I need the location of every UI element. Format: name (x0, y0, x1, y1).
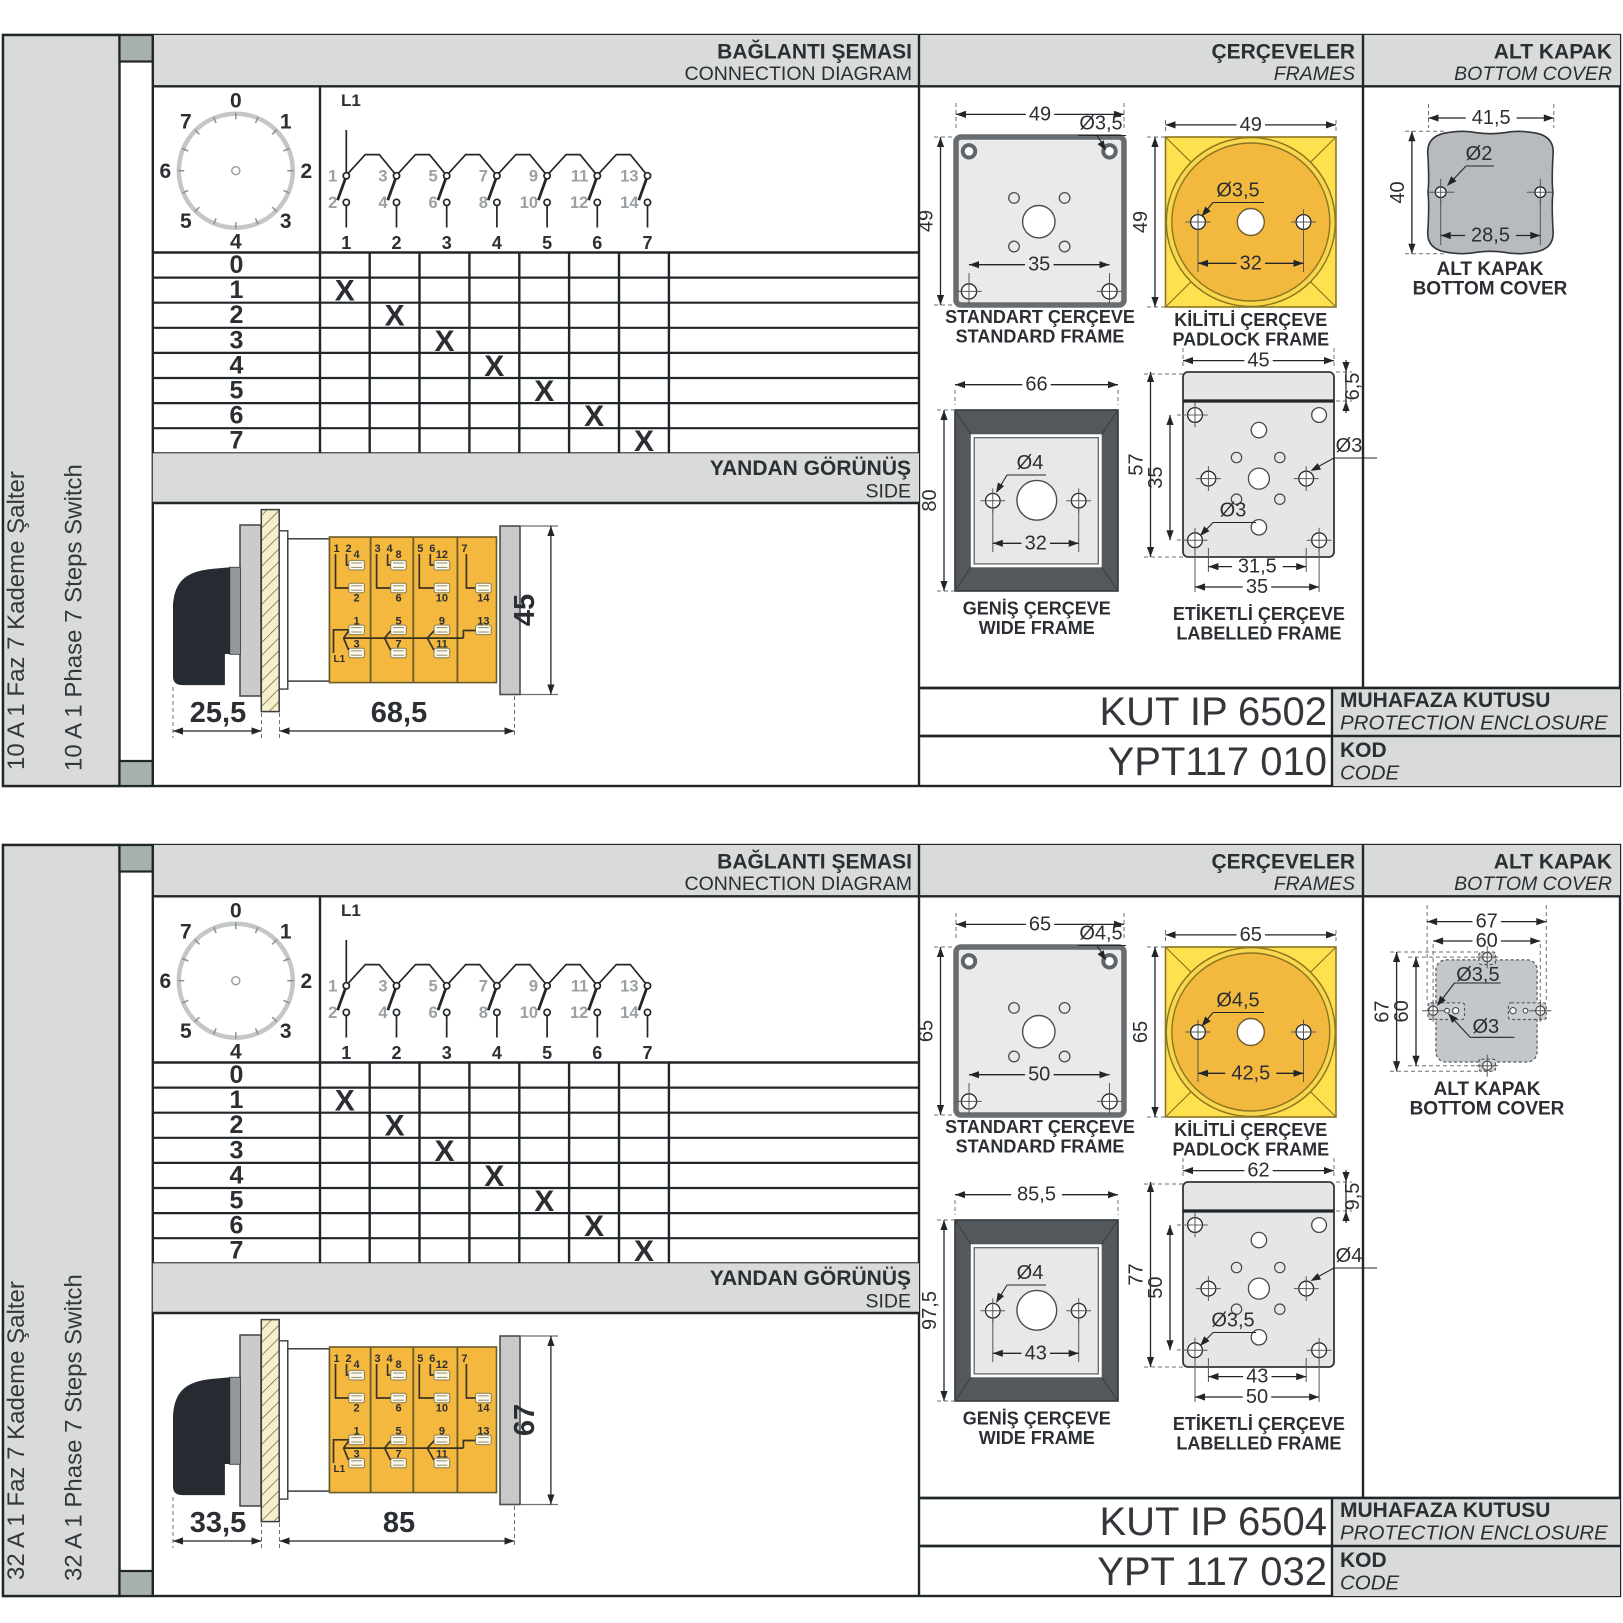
svg-text:ALT KAPAK: ALT KAPAK (1437, 259, 1544, 280)
svg-text:41,5: 41,5 (1472, 107, 1511, 129)
svg-text:CODE: CODE (1340, 762, 1400, 785)
svg-text:1: 1 (280, 110, 292, 133)
svg-text:6: 6 (159, 160, 171, 183)
svg-text:4: 4 (387, 543, 394, 555)
svg-text:6: 6 (429, 1004, 438, 1022)
svg-text:0: 0 (230, 1061, 244, 1089)
svg-text:BOTTOM COVER: BOTTOM COVER (1454, 873, 1612, 895)
svg-text:4: 4 (354, 1359, 361, 1371)
svg-text:Ø3: Ø3 (1220, 500, 1247, 522)
svg-text:GENİŞ ÇERÇEVE: GENİŞ ÇERÇEVE (963, 599, 1111, 619)
svg-text:6: 6 (429, 543, 435, 555)
svg-text:1: 1 (341, 1043, 351, 1063)
svg-text:10 A 1 Faz 7 Kademe Şalter: 10 A 1 Faz 7 Kademe Şalter (3, 471, 30, 770)
svg-text:31,5: 31,5 (1238, 556, 1277, 578)
svg-text:2: 2 (345, 543, 351, 555)
svg-text:6: 6 (230, 1212, 244, 1240)
svg-text:2: 2 (300, 160, 312, 183)
svg-text:5: 5 (180, 210, 192, 233)
svg-text:3: 3 (375, 543, 381, 555)
svg-text:10: 10 (436, 593, 448, 605)
svg-text:7: 7 (642, 233, 652, 253)
svg-text:2: 2 (391, 1043, 401, 1063)
svg-text:6: 6 (159, 970, 171, 993)
svg-text:YANDAN GÖRÜNÜŞ: YANDAN GÖRÜNÜŞ (710, 1267, 911, 1290)
svg-text:3: 3 (280, 1020, 292, 1043)
svg-text:1: 1 (354, 1426, 360, 1438)
svg-text:80: 80 (919, 489, 941, 511)
svg-text:PADLOCK FRAME: PADLOCK FRAME (1172, 330, 1329, 350)
svg-text:6,5: 6,5 (1342, 373, 1364, 401)
svg-text:13: 13 (477, 1426, 489, 1438)
svg-text:X: X (584, 1210, 604, 1243)
svg-text:L1: L1 (341, 91, 361, 110)
svg-text:5: 5 (230, 1187, 244, 1215)
svg-text:35: 35 (1028, 254, 1050, 276)
svg-text:10: 10 (520, 1004, 538, 1022)
svg-text:3: 3 (230, 326, 244, 354)
svg-text:WIDE FRAME: WIDE FRAME (979, 618, 1095, 638)
svg-text:43: 43 (1246, 1366, 1268, 1388)
svg-text:9: 9 (529, 978, 538, 996)
svg-text:BOTTOM COVER: BOTTOM COVER (1413, 279, 1568, 300)
svg-text:CONNECTION DIAGRAM: CONNECTION DIAGRAM (684, 63, 912, 85)
svg-text:0: 0 (230, 251, 244, 279)
svg-text:STANDARD FRAME: STANDARD FRAME (956, 1137, 1125, 1157)
svg-text:SIDE: SIDE (865, 480, 911, 502)
svg-text:5: 5 (542, 1043, 552, 1063)
svg-text:13: 13 (477, 616, 489, 628)
svg-text:Ø2: Ø2 (1466, 143, 1493, 165)
svg-text:6: 6 (592, 233, 602, 253)
svg-text:3: 3 (354, 1449, 360, 1461)
svg-text:85,5: 85,5 (1017, 1184, 1056, 1206)
svg-text:BAĞLANTI ŞEMASI: BAĞLANTI ŞEMASI (717, 40, 912, 64)
svg-text:11: 11 (571, 168, 588, 186)
svg-text:Ø4,5: Ø4,5 (1079, 923, 1122, 945)
svg-text:9,5: 9,5 (1342, 1183, 1364, 1211)
svg-text:33,5: 33,5 (190, 1507, 246, 1539)
svg-text:0: 0 (230, 90, 242, 113)
svg-text:5: 5 (429, 978, 438, 996)
svg-text:65: 65 (916, 1020, 938, 1042)
svg-text:Ø3: Ø3 (1336, 435, 1363, 457)
svg-text:6: 6 (230, 402, 244, 430)
svg-text:2: 2 (230, 1111, 244, 1139)
svg-text:YPT 117 032: YPT 117 032 (1097, 1550, 1327, 1594)
svg-text:Ø3,5: Ø3,5 (1079, 113, 1122, 135)
svg-text:GENİŞ ÇERÇEVE: GENİŞ ÇERÇEVE (963, 1409, 1111, 1429)
svg-text:65: 65 (1029, 913, 1051, 935)
svg-text:X: X (484, 350, 504, 383)
svg-text:7: 7 (479, 978, 488, 996)
svg-text:14: 14 (620, 194, 639, 212)
svg-text:4: 4 (354, 549, 361, 561)
svg-text:ALT KAPAK: ALT KAPAK (1494, 851, 1612, 874)
svg-text:Ø3,5: Ø3,5 (1211, 1310, 1254, 1332)
svg-text:X: X (634, 1235, 654, 1268)
svg-text:YANDAN GÖRÜNÜŞ: YANDAN GÖRÜNÜŞ (710, 457, 911, 480)
svg-text:5: 5 (417, 1353, 423, 1365)
svg-text:X: X (335, 275, 355, 308)
svg-text:40: 40 (1387, 181, 1409, 203)
svg-text:1: 1 (230, 1086, 244, 1114)
svg-text:L1: L1 (334, 654, 346, 665)
svg-text:9: 9 (529, 168, 538, 186)
svg-text:5: 5 (230, 377, 244, 405)
svg-text:68,5: 68,5 (371, 697, 427, 729)
svg-text:12: 12 (436, 549, 448, 561)
svg-text:12: 12 (570, 194, 588, 212)
svg-text:7: 7 (230, 1237, 244, 1265)
svg-text:13: 13 (620, 978, 638, 996)
svg-text:BAĞLANTI ŞEMASI: BAĞLANTI ŞEMASI (717, 850, 912, 874)
svg-text:1: 1 (328, 978, 337, 996)
svg-text:14: 14 (620, 1004, 639, 1022)
svg-text:X: X (584, 400, 604, 433)
svg-text:ALT KAPAK: ALT KAPAK (1434, 1079, 1541, 1100)
svg-text:L1: L1 (334, 1464, 346, 1475)
svg-text:4: 4 (230, 1161, 244, 1189)
svg-text:62: 62 (1247, 1160, 1269, 1182)
svg-text:4: 4 (387, 1353, 394, 1365)
svg-text:KUT IP 6502: KUT IP 6502 (1099, 690, 1327, 734)
svg-text:7: 7 (479, 168, 488, 186)
svg-text:LABELLED FRAME: LABELLED FRAME (1176, 624, 1341, 644)
svg-text:7: 7 (395, 639, 401, 651)
svg-text:2: 2 (300, 970, 312, 993)
svg-text:5: 5 (429, 168, 438, 186)
svg-text:KİLİTLİ ÇERÇEVE: KİLİTLİ ÇERÇEVE (1174, 310, 1327, 330)
svg-text:8: 8 (395, 549, 401, 561)
svg-text:32 A 1 Faz 7 Kademe Şalter: 32 A 1 Faz 7 Kademe Şalter (3, 1281, 30, 1580)
svg-text:ETİKETLİ ÇERÇEVE: ETİKETLİ ÇERÇEVE (1173, 604, 1345, 624)
svg-text:13: 13 (620, 168, 638, 186)
svg-text:Ø3,5: Ø3,5 (1216, 180, 1259, 202)
svg-text:ETİKETLİ ÇERÇEVE: ETİKETLİ ÇERÇEVE (1173, 1414, 1345, 1434)
svg-text:STANDART ÇERÇEVE: STANDART ÇERÇEVE (945, 1117, 1135, 1137)
svg-text:KOD: KOD (1340, 1549, 1387, 1572)
svg-text:1: 1 (333, 543, 339, 555)
svg-text:ÇERÇEVELER: ÇERÇEVELER (1211, 41, 1355, 64)
svg-text:9: 9 (439, 616, 445, 628)
svg-text:LABELLED FRAME: LABELLED FRAME (1176, 1434, 1341, 1454)
svg-text:49: 49 (1240, 114, 1262, 136)
svg-text:85: 85 (383, 1507, 415, 1539)
svg-text:67: 67 (509, 1404, 541, 1436)
svg-text:MUHAFAZA KUTUSU: MUHAFAZA KUTUSU (1340, 689, 1550, 712)
svg-text:3: 3 (230, 1136, 244, 1164)
svg-text:CODE: CODE (1340, 1572, 1400, 1595)
svg-text:4: 4 (492, 233, 502, 253)
svg-text:45: 45 (1247, 350, 1269, 372)
svg-text:Ø4: Ø4 (1017, 452, 1044, 474)
svg-text:2: 2 (345, 1353, 351, 1365)
svg-text:3: 3 (354, 639, 360, 651)
svg-text:6: 6 (592, 1043, 602, 1063)
svg-text:5: 5 (395, 1426, 401, 1438)
svg-text:0: 0 (230, 900, 242, 923)
svg-text:42,5: 42,5 (1231, 1062, 1270, 1084)
svg-text:49: 49 (916, 210, 938, 232)
svg-text:1: 1 (328, 168, 337, 186)
svg-text:X: X (634, 425, 654, 458)
svg-text:2: 2 (328, 194, 337, 212)
svg-text:8: 8 (479, 194, 488, 212)
svg-text:5: 5 (395, 616, 401, 628)
svg-text:9: 9 (439, 1426, 445, 1438)
svg-text:50: 50 (1028, 1064, 1050, 1086)
svg-text:14: 14 (477, 1403, 490, 1415)
svg-text:3: 3 (375, 1353, 381, 1365)
svg-text:X: X (385, 1110, 405, 1143)
svg-text:PROTECTION ENCLOSURE: PROTECTION ENCLOSURE (1340, 1522, 1608, 1545)
svg-text:X: X (434, 325, 454, 358)
svg-text:WIDE FRAME: WIDE FRAME (979, 1428, 1095, 1448)
svg-text:6: 6 (429, 194, 438, 212)
svg-text:Ø4: Ø4 (1336, 1245, 1363, 1267)
svg-text:2: 2 (354, 593, 360, 605)
svg-text:49: 49 (1130, 211, 1152, 233)
svg-text:SIDE: SIDE (865, 1290, 911, 1312)
svg-text:50: 50 (1246, 1386, 1268, 1408)
svg-text:Ø3: Ø3 (1472, 1016, 1499, 1038)
svg-text:35: 35 (1246, 576, 1268, 598)
svg-text:12: 12 (570, 1004, 588, 1022)
svg-text:BOTTOM COVER: BOTTOM COVER (1410, 1098, 1565, 1119)
svg-text:KUT IP 6504: KUT IP 6504 (1099, 1500, 1327, 1544)
svg-text:Ø4,5: Ø4,5 (1216, 990, 1259, 1012)
svg-text:X: X (335, 1085, 355, 1118)
svg-text:60: 60 (1391, 1000, 1413, 1022)
svg-text:4: 4 (378, 194, 388, 212)
svg-text:97,5: 97,5 (919, 1291, 941, 1330)
svg-text:49: 49 (1029, 103, 1051, 125)
svg-text:2: 2 (354, 1403, 360, 1415)
svg-text:35: 35 (1145, 466, 1167, 488)
svg-text:FRAMES: FRAMES (1274, 873, 1355, 895)
svg-text:FRAMES: FRAMES (1274, 63, 1355, 85)
svg-text:2: 2 (230, 301, 244, 329)
svg-text:50: 50 (1145, 1276, 1167, 1298)
svg-text:6: 6 (395, 593, 401, 605)
svg-text:MUHAFAZA KUTUSU: MUHAFAZA KUTUSU (1340, 1499, 1550, 1522)
svg-text:65: 65 (1130, 1021, 1152, 1043)
svg-text:28,5: 28,5 (1471, 225, 1510, 247)
svg-text:25,5: 25,5 (190, 697, 246, 729)
svg-text:X: X (534, 375, 554, 408)
svg-text:3: 3 (442, 233, 452, 253)
svg-text:4: 4 (492, 1043, 502, 1063)
svg-text:X: X (434, 1135, 454, 1168)
svg-text:2: 2 (328, 1004, 337, 1022)
svg-text:32: 32 (1240, 252, 1262, 274)
svg-text:66: 66 (1025, 374, 1047, 396)
svg-text:11: 11 (436, 639, 448, 651)
svg-text:7: 7 (642, 1043, 652, 1063)
svg-text:43: 43 (1025, 1342, 1047, 1364)
svg-text:CONNECTION DIAGRAM: CONNECTION DIAGRAM (684, 873, 912, 895)
svg-text:12: 12 (436, 1359, 448, 1371)
svg-text:32: 32 (1025, 532, 1047, 554)
svg-text:11: 11 (436, 1449, 448, 1461)
svg-text:1: 1 (341, 233, 351, 253)
svg-text:6: 6 (429, 1353, 435, 1365)
svg-text:7: 7 (461, 543, 467, 555)
svg-text:L1: L1 (341, 901, 361, 920)
svg-text:11: 11 (571, 978, 588, 996)
svg-text:STANDARD FRAME: STANDARD FRAME (956, 327, 1125, 347)
svg-text:7: 7 (461, 1353, 467, 1365)
svg-text:YPT117 010: YPT117 010 (1108, 740, 1327, 784)
svg-text:7: 7 (180, 110, 192, 133)
svg-text:32 A 1 Phase 7 Steps Switch: 32 A 1 Phase 7 Steps Switch (61, 1274, 88, 1581)
svg-text:BOTTOM COVER: BOTTOM COVER (1454, 63, 1612, 85)
svg-text:10: 10 (436, 1403, 448, 1415)
svg-text:ALT KAPAK: ALT KAPAK (1494, 41, 1612, 64)
svg-text:2: 2 (391, 233, 401, 253)
svg-text:Ø4: Ø4 (1017, 1262, 1044, 1284)
svg-text:3: 3 (378, 978, 387, 996)
svg-text:ÇERÇEVELER: ÇERÇEVELER (1211, 851, 1355, 874)
svg-text:4: 4 (378, 1004, 388, 1022)
svg-text:KOD: KOD (1340, 739, 1387, 762)
svg-text:1: 1 (280, 920, 292, 943)
svg-text:8: 8 (395, 1359, 401, 1371)
svg-text:65: 65 (1240, 924, 1262, 946)
svg-text:STANDART ÇERÇEVE: STANDART ÇERÇEVE (945, 307, 1135, 327)
svg-text:X: X (385, 300, 405, 333)
svg-text:7: 7 (180, 920, 192, 943)
svg-text:5: 5 (417, 543, 423, 555)
svg-text:X: X (484, 1160, 504, 1193)
svg-text:1: 1 (333, 1353, 339, 1365)
svg-text:7: 7 (230, 427, 244, 455)
svg-text:1: 1 (354, 616, 360, 628)
svg-text:KİLİTLİ ÇERÇEVE: KİLİTLİ ÇERÇEVE (1174, 1120, 1327, 1140)
svg-text:60: 60 (1476, 930, 1498, 952)
svg-text:8: 8 (479, 1004, 488, 1022)
svg-text:10: 10 (520, 194, 538, 212)
svg-text:X: X (534, 1185, 554, 1218)
svg-text:10 A 1 Phase 7 Steps Switch: 10 A 1 Phase 7 Steps Switch (61, 464, 88, 771)
svg-text:1: 1 (230, 276, 244, 304)
svg-text:45: 45 (509, 594, 541, 626)
svg-text:3: 3 (280, 210, 292, 233)
svg-text:3: 3 (442, 1043, 452, 1063)
svg-text:4: 4 (230, 351, 244, 379)
svg-text:3: 3 (378, 168, 387, 186)
svg-text:PROTECTION ENCLOSURE: PROTECTION ENCLOSURE (1340, 712, 1608, 735)
svg-text:PADLOCK FRAME: PADLOCK FRAME (1172, 1140, 1329, 1160)
svg-text:5: 5 (542, 233, 552, 253)
svg-text:5: 5 (180, 1020, 192, 1043)
svg-text:14: 14 (477, 593, 490, 605)
svg-text:6: 6 (395, 1403, 401, 1415)
svg-text:7: 7 (395, 1449, 401, 1461)
